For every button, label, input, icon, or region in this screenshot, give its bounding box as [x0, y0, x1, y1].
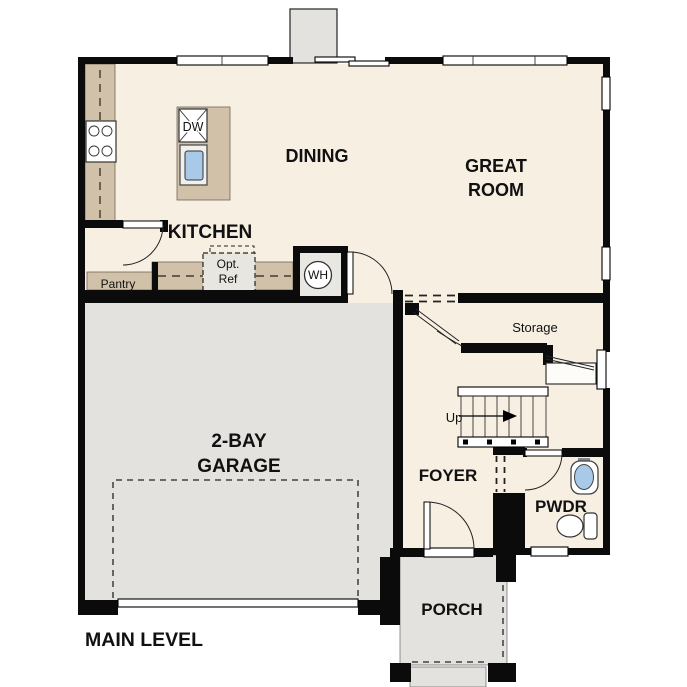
wall-powder-north-2: [562, 448, 610, 457]
porch-pillar-bottom-right: [488, 663, 516, 682]
window-dining-north: [177, 56, 268, 65]
window-greatroom-north: [443, 56, 567, 65]
wall-garage-south-right: [358, 600, 400, 615]
wall-pantry-north: [85, 220, 123, 228]
window-powder-south: [531, 547, 568, 556]
wall-top-1: [78, 57, 177, 64]
label-great-room-2: ROOM: [468, 180, 524, 200]
floor-plan-drawing: DW Opt. Ref: [0, 0, 687, 687]
floor-plan-page: DW Opt. Ref: [0, 0, 687, 687]
porch-step: [410, 667, 486, 687]
wall-top-2: [268, 57, 293, 64]
water-heater-icon: WH: [300, 253, 341, 296]
water-heater-label: WH: [308, 268, 328, 282]
wall-top-3: [385, 57, 443, 64]
label-porch: PORCH: [421, 600, 482, 619]
label-dining: DINING: [286, 146, 349, 166]
toilet-icon: [557, 513, 597, 539]
wall-right-3: [603, 280, 610, 352]
label-powder: PWDR: [535, 497, 587, 516]
porch-pillar-bottom-left: [390, 663, 411, 682]
window-greatroom-east-1: [602, 77, 610, 110]
label-foyer: FOYER: [419, 466, 478, 485]
wall-left: [78, 57, 85, 615]
stair-railing-bottom: [458, 437, 548, 447]
label-storage: Storage: [512, 320, 558, 335]
optional-fridge-label-line1: Opt.: [217, 257, 240, 271]
fireplace-chimney: [290, 9, 337, 63]
label-great-room-1: GREAT: [465, 156, 527, 176]
stair-railing-top: [458, 387, 548, 396]
dishwasher-label: DW: [183, 120, 204, 134]
optional-fridge-label-line2: Ref: [219, 272, 238, 286]
garage-door: [118, 599, 358, 607]
window-closet-east: [597, 350, 606, 389]
wall-right-1: [603, 57, 610, 77]
garage-entry-passage-floor: [348, 288, 393, 303]
label-pantry: Pantry: [101, 277, 136, 291]
wall-right-4: [603, 388, 610, 555]
wall-kitchen-south: [85, 290, 293, 303]
optional-fridge-box: Opt. Ref: [203, 246, 255, 296]
wall-garage-south-left: [78, 600, 118, 615]
label-garage-2: GARAGE: [197, 456, 280, 477]
label-stairs-up: Up: [446, 410, 463, 425]
label-kitchen: KITCHEN: [168, 222, 252, 243]
wall-porch-north-right: [474, 548, 493, 557]
dishwasher-icon: DW: [179, 109, 207, 142]
label-garage-1: 2-BAY: [211, 431, 267, 452]
window-greatroom-east-2: [602, 247, 610, 280]
wall-foyer-west: [393, 290, 403, 548]
wall-storage-south: [461, 343, 547, 353]
wall-right-2: [603, 110, 610, 247]
wall-storage-stub: [405, 303, 419, 315]
cooktop-icon: [86, 121, 116, 162]
porch-pillar-top-right: [496, 552, 516, 582]
island-sink-icon: [180, 145, 207, 185]
plan-title: MAIN LEVEL: [85, 629, 203, 651]
wall-bottom-right-2: [568, 548, 610, 555]
wall-pantry-divider: [152, 262, 158, 290]
wall-storage-north: [458, 293, 610, 303]
wall-closet-stub: [543, 345, 553, 365]
wall-porch-north-left: [390, 548, 424, 557]
slider-door-panel-2: [349, 61, 389, 66]
front-door-sill: [424, 548, 474, 557]
powder-sink-icon: [571, 458, 598, 494]
wall-powder-west-lower: [493, 493, 525, 548]
